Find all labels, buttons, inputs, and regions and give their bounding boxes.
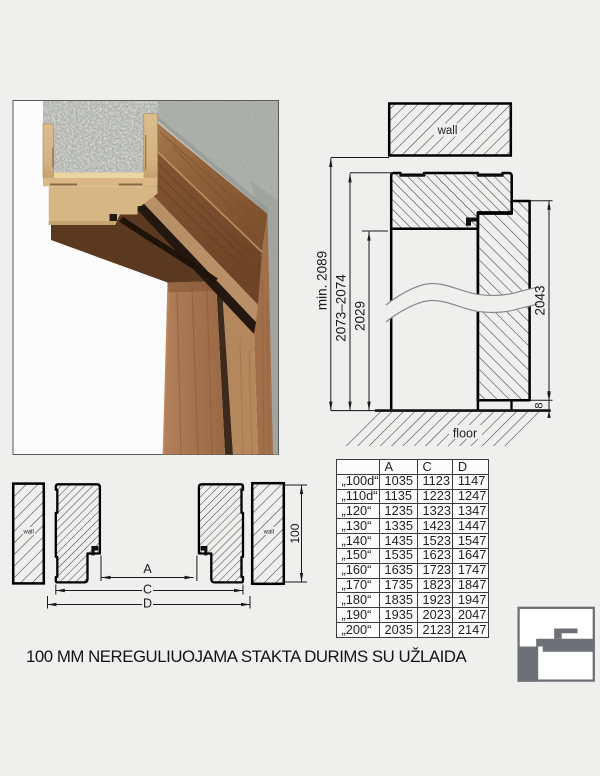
svg-text:min. 2089: min. 2089 xyxy=(315,251,330,310)
svg-text:C: C xyxy=(143,583,152,597)
svg-text:100: 100 xyxy=(288,523,302,543)
svg-text:A: A xyxy=(143,562,152,576)
svg-text:wall: wall xyxy=(263,530,274,536)
svg-text:2043: 2043 xyxy=(533,285,548,315)
svg-text:8: 8 xyxy=(534,402,546,408)
svg-text:floor: floor xyxy=(453,427,477,441)
svg-text:2029: 2029 xyxy=(353,301,368,331)
svg-text:wall: wall xyxy=(437,125,458,137)
svg-text:2073–2074: 2073–2074 xyxy=(334,274,349,342)
svg-text:wall: wall xyxy=(23,530,34,536)
svg-text:D: D xyxy=(143,597,152,611)
